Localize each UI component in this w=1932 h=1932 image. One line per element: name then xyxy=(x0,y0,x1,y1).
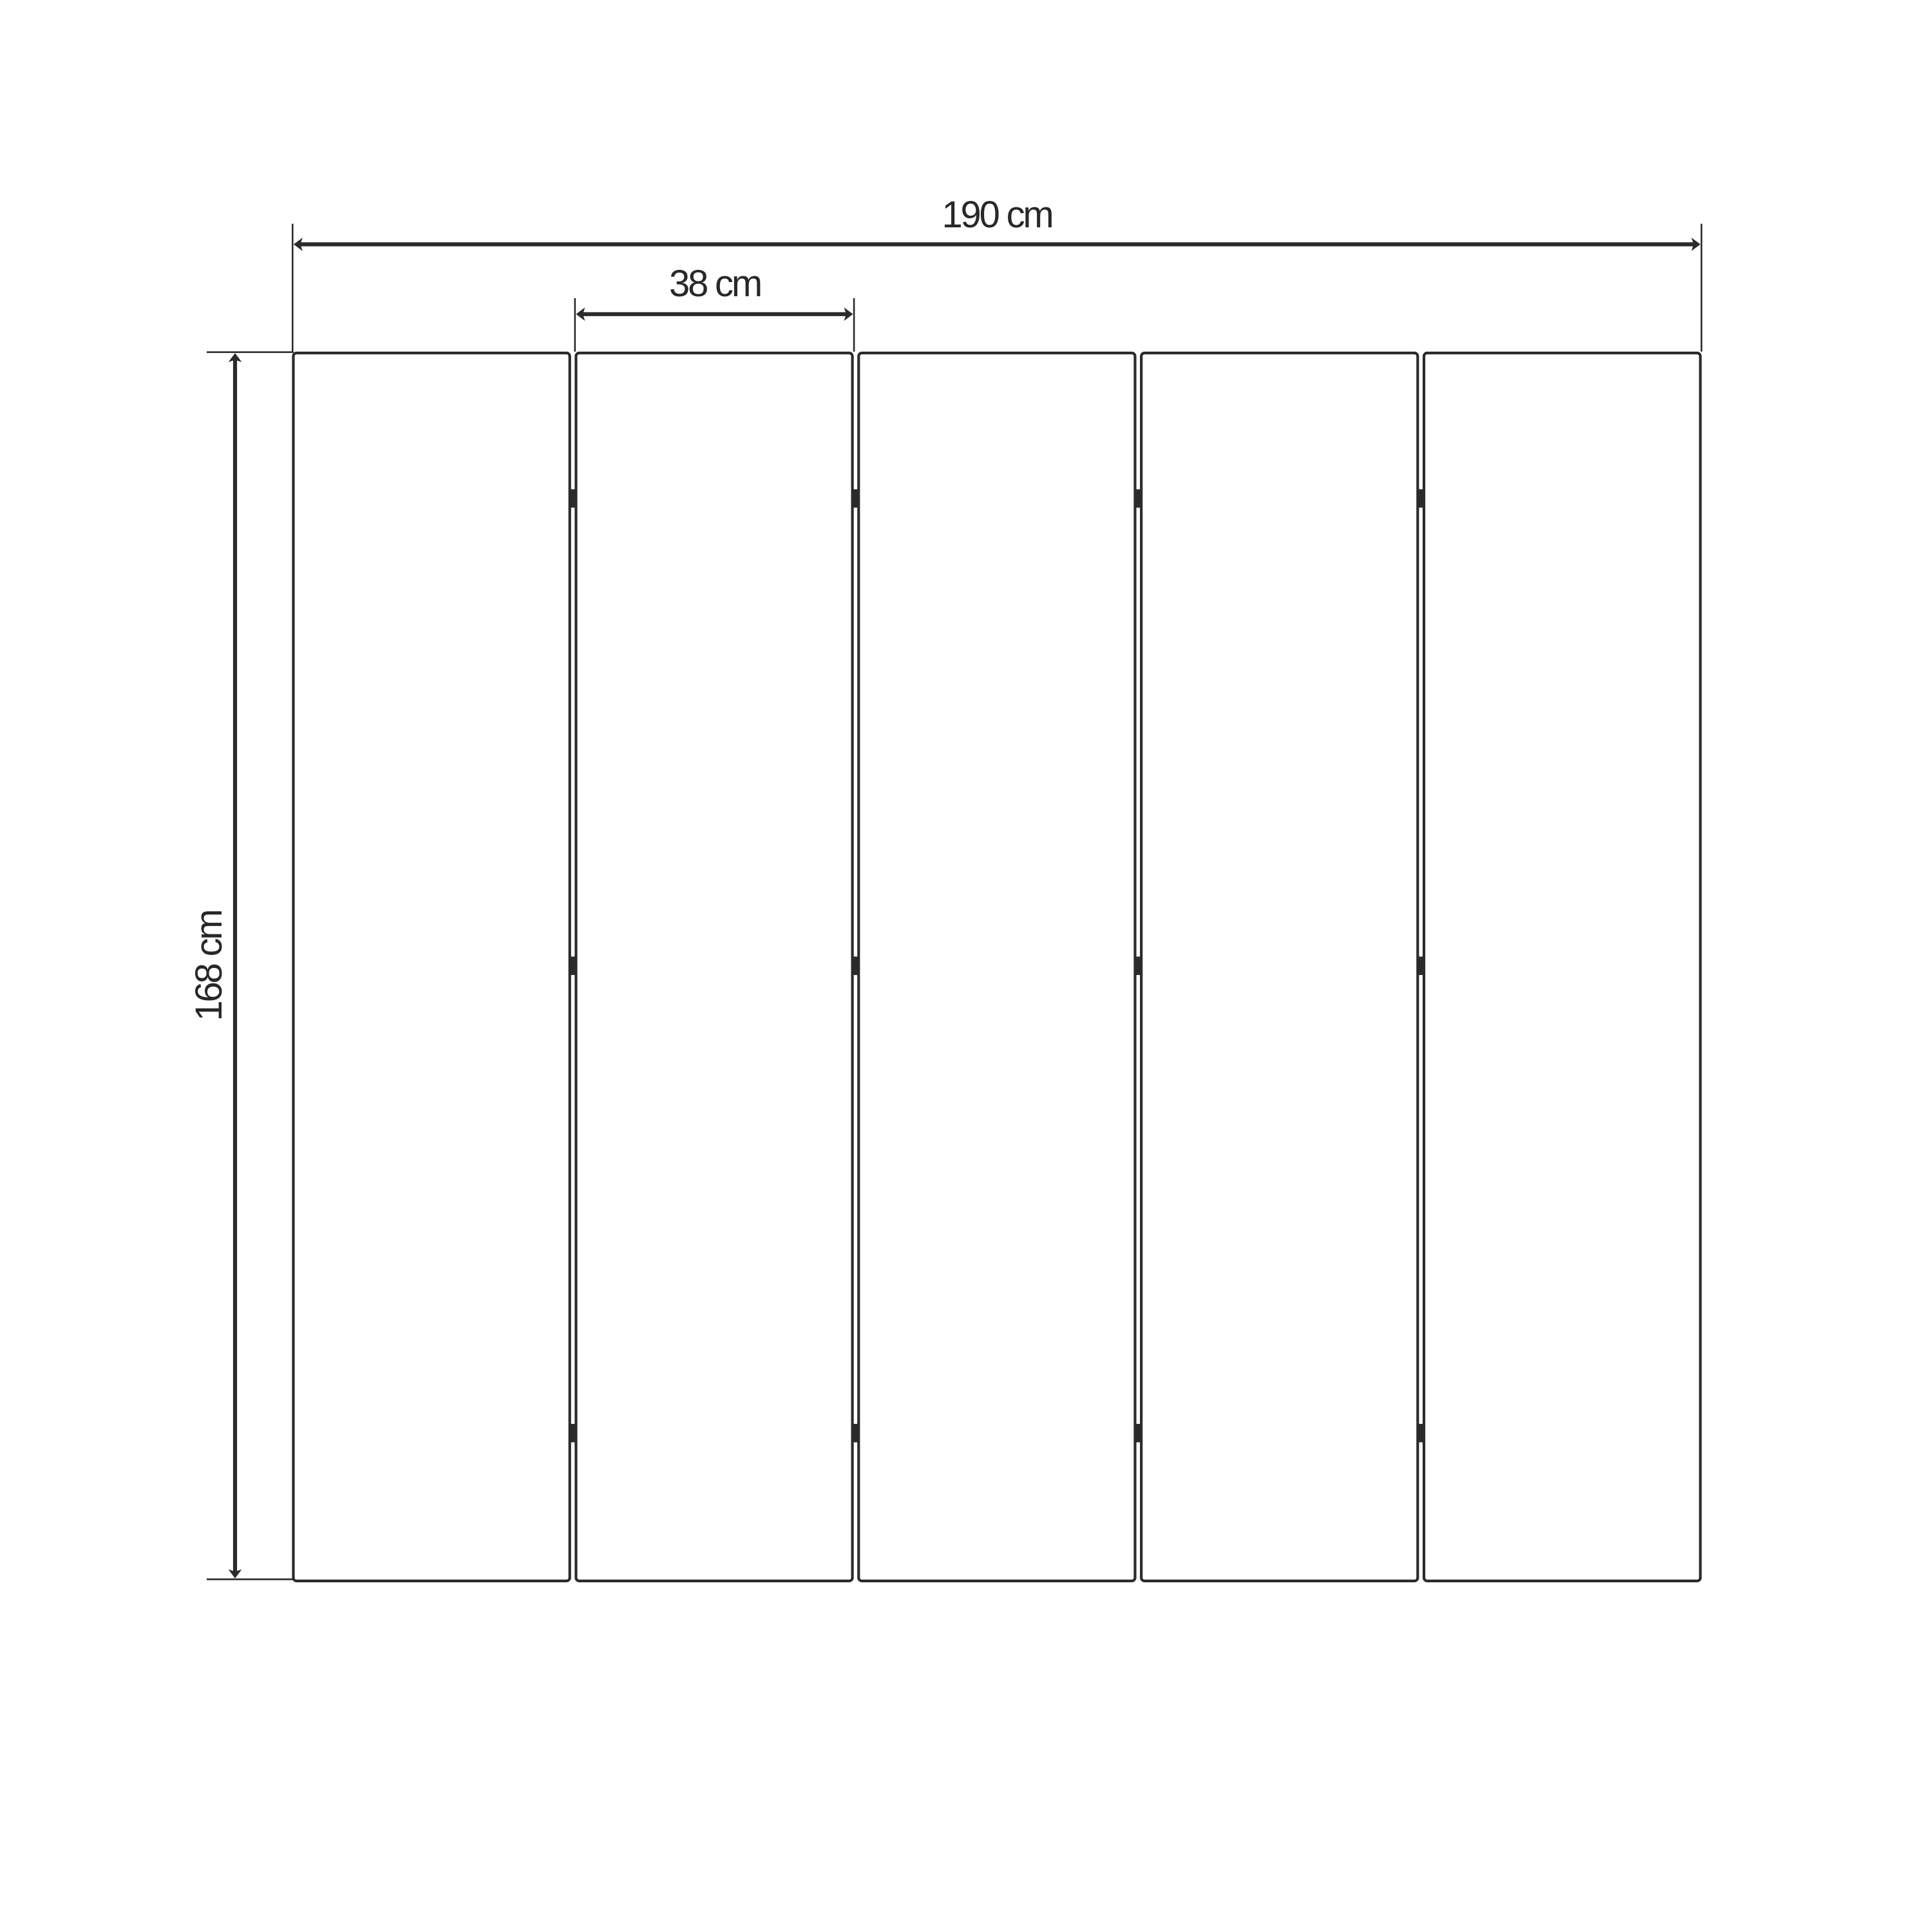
svg-text:190 cm: 190 cm xyxy=(942,194,1052,236)
svg-text:38 cm: 38 cm xyxy=(669,263,761,305)
svg-text:168 cm: 168 cm xyxy=(188,911,230,1021)
